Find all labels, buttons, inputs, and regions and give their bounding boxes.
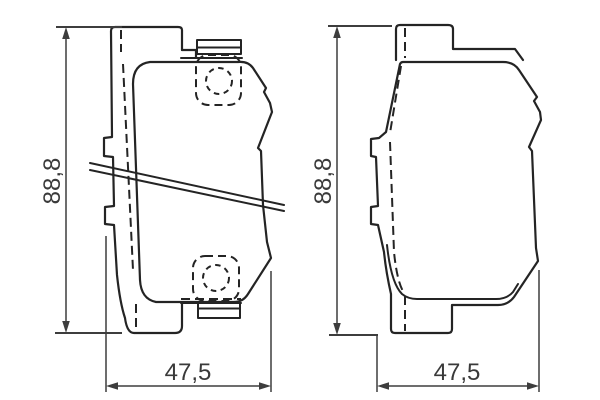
left-pad-height-label: 88,8 <box>39 158 66 205</box>
right-pad-friction-bottom-edge <box>387 245 518 299</box>
technical-drawing-canvas: 88,8 47,5 88,8 47,5 <box>0 0 600 400</box>
left-pad-height-arrow-up <box>62 27 70 39</box>
left-pad-friction-outline <box>133 62 272 302</box>
right-pad-width-label: 47,5 <box>434 359 481 386</box>
left-pad-top-step <box>182 50 196 57</box>
left-pad-wear-indicator-hole-bottom <box>203 265 229 291</box>
right-pad-height-arrow-up <box>333 26 341 38</box>
right-pad-backplate-outline <box>371 62 541 333</box>
right-pad-height-arrow-down <box>333 323 341 335</box>
left-pad-dimensions: 88,8 47,5 <box>39 27 271 392</box>
left-pad-bottom-shim-plate <box>198 304 240 318</box>
left-pad-wear-indicator-hole-top <box>206 68 232 94</box>
left-pad-view <box>90 27 284 333</box>
technical-drawing-page: 88,8 47,5 88,8 47,5 <box>0 0 600 400</box>
right-pad-view <box>371 25 541 333</box>
left-pad-width-arrow-right <box>259 382 271 389</box>
right-pad-height-label: 88,8 <box>310 158 337 205</box>
right-pad-width-arrow-right <box>527 382 539 389</box>
right-pad-dimensions: 88,8 47,5 <box>310 26 539 392</box>
left-pad-width-arrow-left <box>106 382 118 389</box>
left-pad-width-label: 47,5 <box>165 359 212 386</box>
right-pad-width-arrow-left <box>377 382 389 389</box>
right-pad-top-tab <box>396 25 523 60</box>
left-pad-wear-indicator-mount-bottom <box>193 256 239 301</box>
left-pad-height-arrow-down <box>62 321 70 333</box>
left-pad-top-shim-plate <box>197 40 241 54</box>
left-pad-sensor-wire-lines <box>90 163 284 211</box>
